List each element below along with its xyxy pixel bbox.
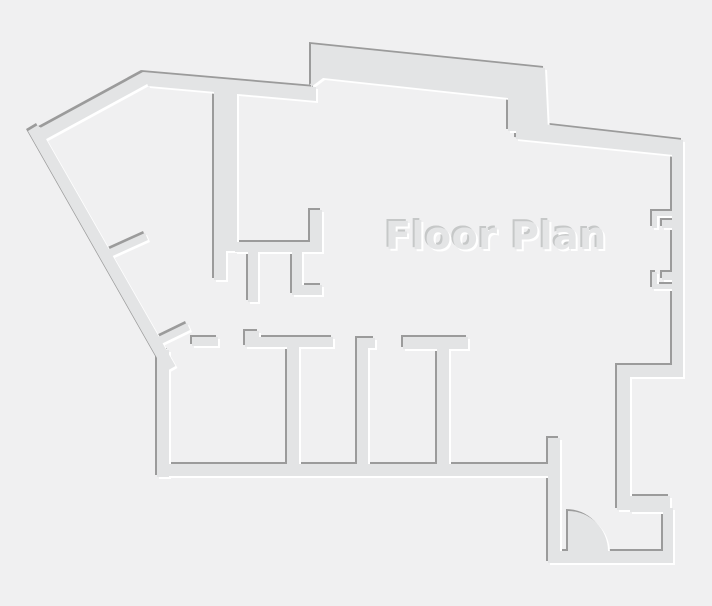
- wall-segment: [248, 252, 258, 302]
- title-group: Floor Plan: [385, 214, 607, 258]
- wall-segment: [403, 337, 468, 349]
- wall-segment: [617, 365, 630, 510]
- wall-segment: [157, 464, 552, 476]
- wall-segment: [437, 347, 449, 468]
- wall-segment: [287, 345, 299, 468]
- wall-segment: [663, 508, 673, 563]
- wall-segment: [630, 496, 670, 512]
- wall-segment: [245, 331, 259, 340]
- wall-segment: [235, 242, 322, 252]
- floor-plan-title: Floor Plan: [385, 214, 607, 258]
- wall-segment: [310, 210, 322, 252]
- wall-segment: [548, 438, 560, 563]
- floor-plan-page: Floor Plan: [0, 0, 712, 606]
- wall-segment: [226, 88, 237, 251]
- wall-segment: [157, 350, 169, 477]
- wall-segment: [357, 346, 368, 468]
- page-background: [0, 0, 712, 606]
- wall-notch: [662, 220, 673, 228]
- wall-segment: [672, 140, 683, 368]
- floor-plan-canvas: Floor Plan: [0, 0, 712, 606]
- wall-segment: [548, 551, 673, 563]
- wall-segment: [192, 337, 218, 346]
- wall-segment: [300, 285, 322, 295]
- wall-notch: [662, 272, 673, 280]
- wall-segment: [214, 88, 226, 280]
